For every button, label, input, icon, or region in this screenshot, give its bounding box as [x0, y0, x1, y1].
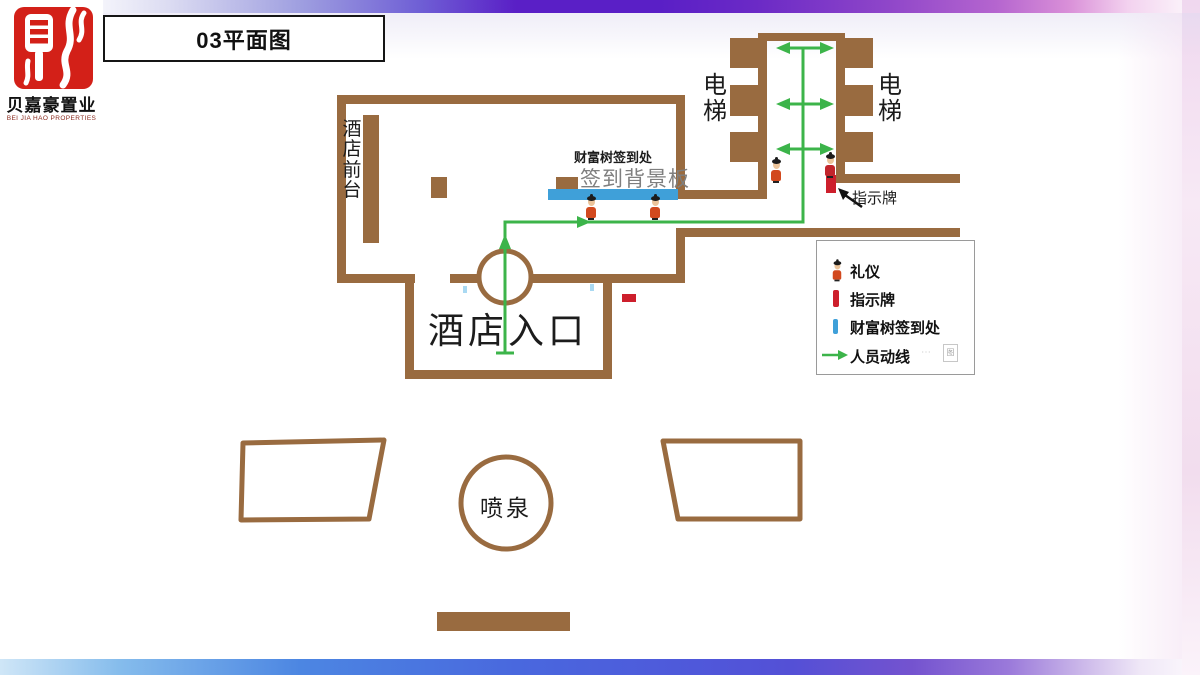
- checkin-board-label: 签到背景板: [580, 163, 690, 193]
- small-sign-marker: [622, 294, 636, 302]
- hotel-entrance-label: 酒店入口: [406, 302, 610, 354]
- flow-arrowhead-up: [499, 234, 511, 249]
- elevator-car-left-2: [730, 85, 758, 116]
- board-bar-icon: [833, 319, 838, 334]
- elevator-corridor-wall-top: [758, 33, 845, 41]
- watermark-dots: ⋯: [921, 347, 932, 358]
- legend-item-sign: 指示牌: [850, 289, 895, 310]
- legend-item-greeter: 礼仪: [850, 261, 880, 282]
- watermark-placeholder: 图: [943, 344, 958, 362]
- front-desk-label: 酒店前台: [340, 120, 364, 201]
- driveway-bar: [437, 612, 570, 631]
- elevator-right-label: 电梯: [876, 74, 904, 125]
- company-name-en: BEI JIA HAO PROPERTIES: [2, 115, 101, 122]
- elevator-car-right-3: [845, 132, 873, 162]
- legend-item-checkin: 财富树签到处: [850, 317, 940, 338]
- greeter-figure-icon: [586, 198, 596, 220]
- sign-bar-icon: [833, 290, 839, 307]
- planter-left: [241, 440, 384, 520]
- slide-title: 03平面图: [196, 23, 291, 55]
- elevator-corridor-wall-right: [836, 33, 845, 183]
- company-logo: 贝嘉豪置业 BEI JIA HAO PROPERTIES: [0, 0, 103, 130]
- red-seal-cai-icon: [13, 5, 95, 91]
- planter-right: [663, 441, 800, 519]
- slide-title-box: 03平面图: [103, 15, 385, 62]
- lobby-wall-top: [337, 95, 685, 104]
- door-mark-right: [590, 284, 594, 291]
- lobby-pillar: [431, 177, 447, 198]
- flow-arrow-icon: [821, 349, 849, 361]
- elevator-car-right-1: [845, 38, 873, 68]
- fountain-label: 喷泉: [466, 489, 546, 523]
- legend-item-flow: 人员动线: [850, 346, 910, 367]
- greeter-figure-icon: [650, 198, 660, 220]
- elevator-corridor-wall-left: [758, 33, 767, 199]
- lobby-wall-bottom-mid: [450, 274, 479, 283]
- elevator-left-label: 电梯: [701, 74, 729, 125]
- company-name-cn: 贝嘉豪置业: [2, 91, 101, 116]
- legend-box: 礼仪 指示牌 财富树签到处 人员动线 ⋯ 图: [816, 240, 975, 375]
- greeter-figure-icon: [771, 161, 781, 183]
- bottom-gradient-band: [0, 659, 1200, 675]
- direction-sign-label: 指示牌: [852, 187, 897, 208]
- door-mark-left: [463, 286, 467, 293]
- passage-wall-lower: [676, 228, 960, 237]
- entrance-wall-bottom: [405, 370, 612, 379]
- top-gradient-band: [0, 0, 1200, 13]
- elevator-car-left-1: [730, 38, 758, 68]
- revolving-door-circle: [479, 251, 531, 303]
- lobby-wall-bottom-left: [337, 274, 415, 283]
- right-tint: [1118, 13, 1182, 659]
- greeter-figure-icon: [833, 263, 842, 282]
- front-desk-counter: [363, 115, 379, 243]
- greeter-figure-icon: [825, 156, 835, 178]
- right-gradient-band: [1182, 0, 1200, 675]
- elevator-car-left-3: [730, 132, 758, 162]
- elevator-car-right-2: [845, 85, 873, 116]
- slide: 贝嘉豪置业 BEI JIA HAO PROPERTIES 03平面图: [0, 0, 1200, 675]
- east-hallway-wall: [836, 174, 960, 183]
